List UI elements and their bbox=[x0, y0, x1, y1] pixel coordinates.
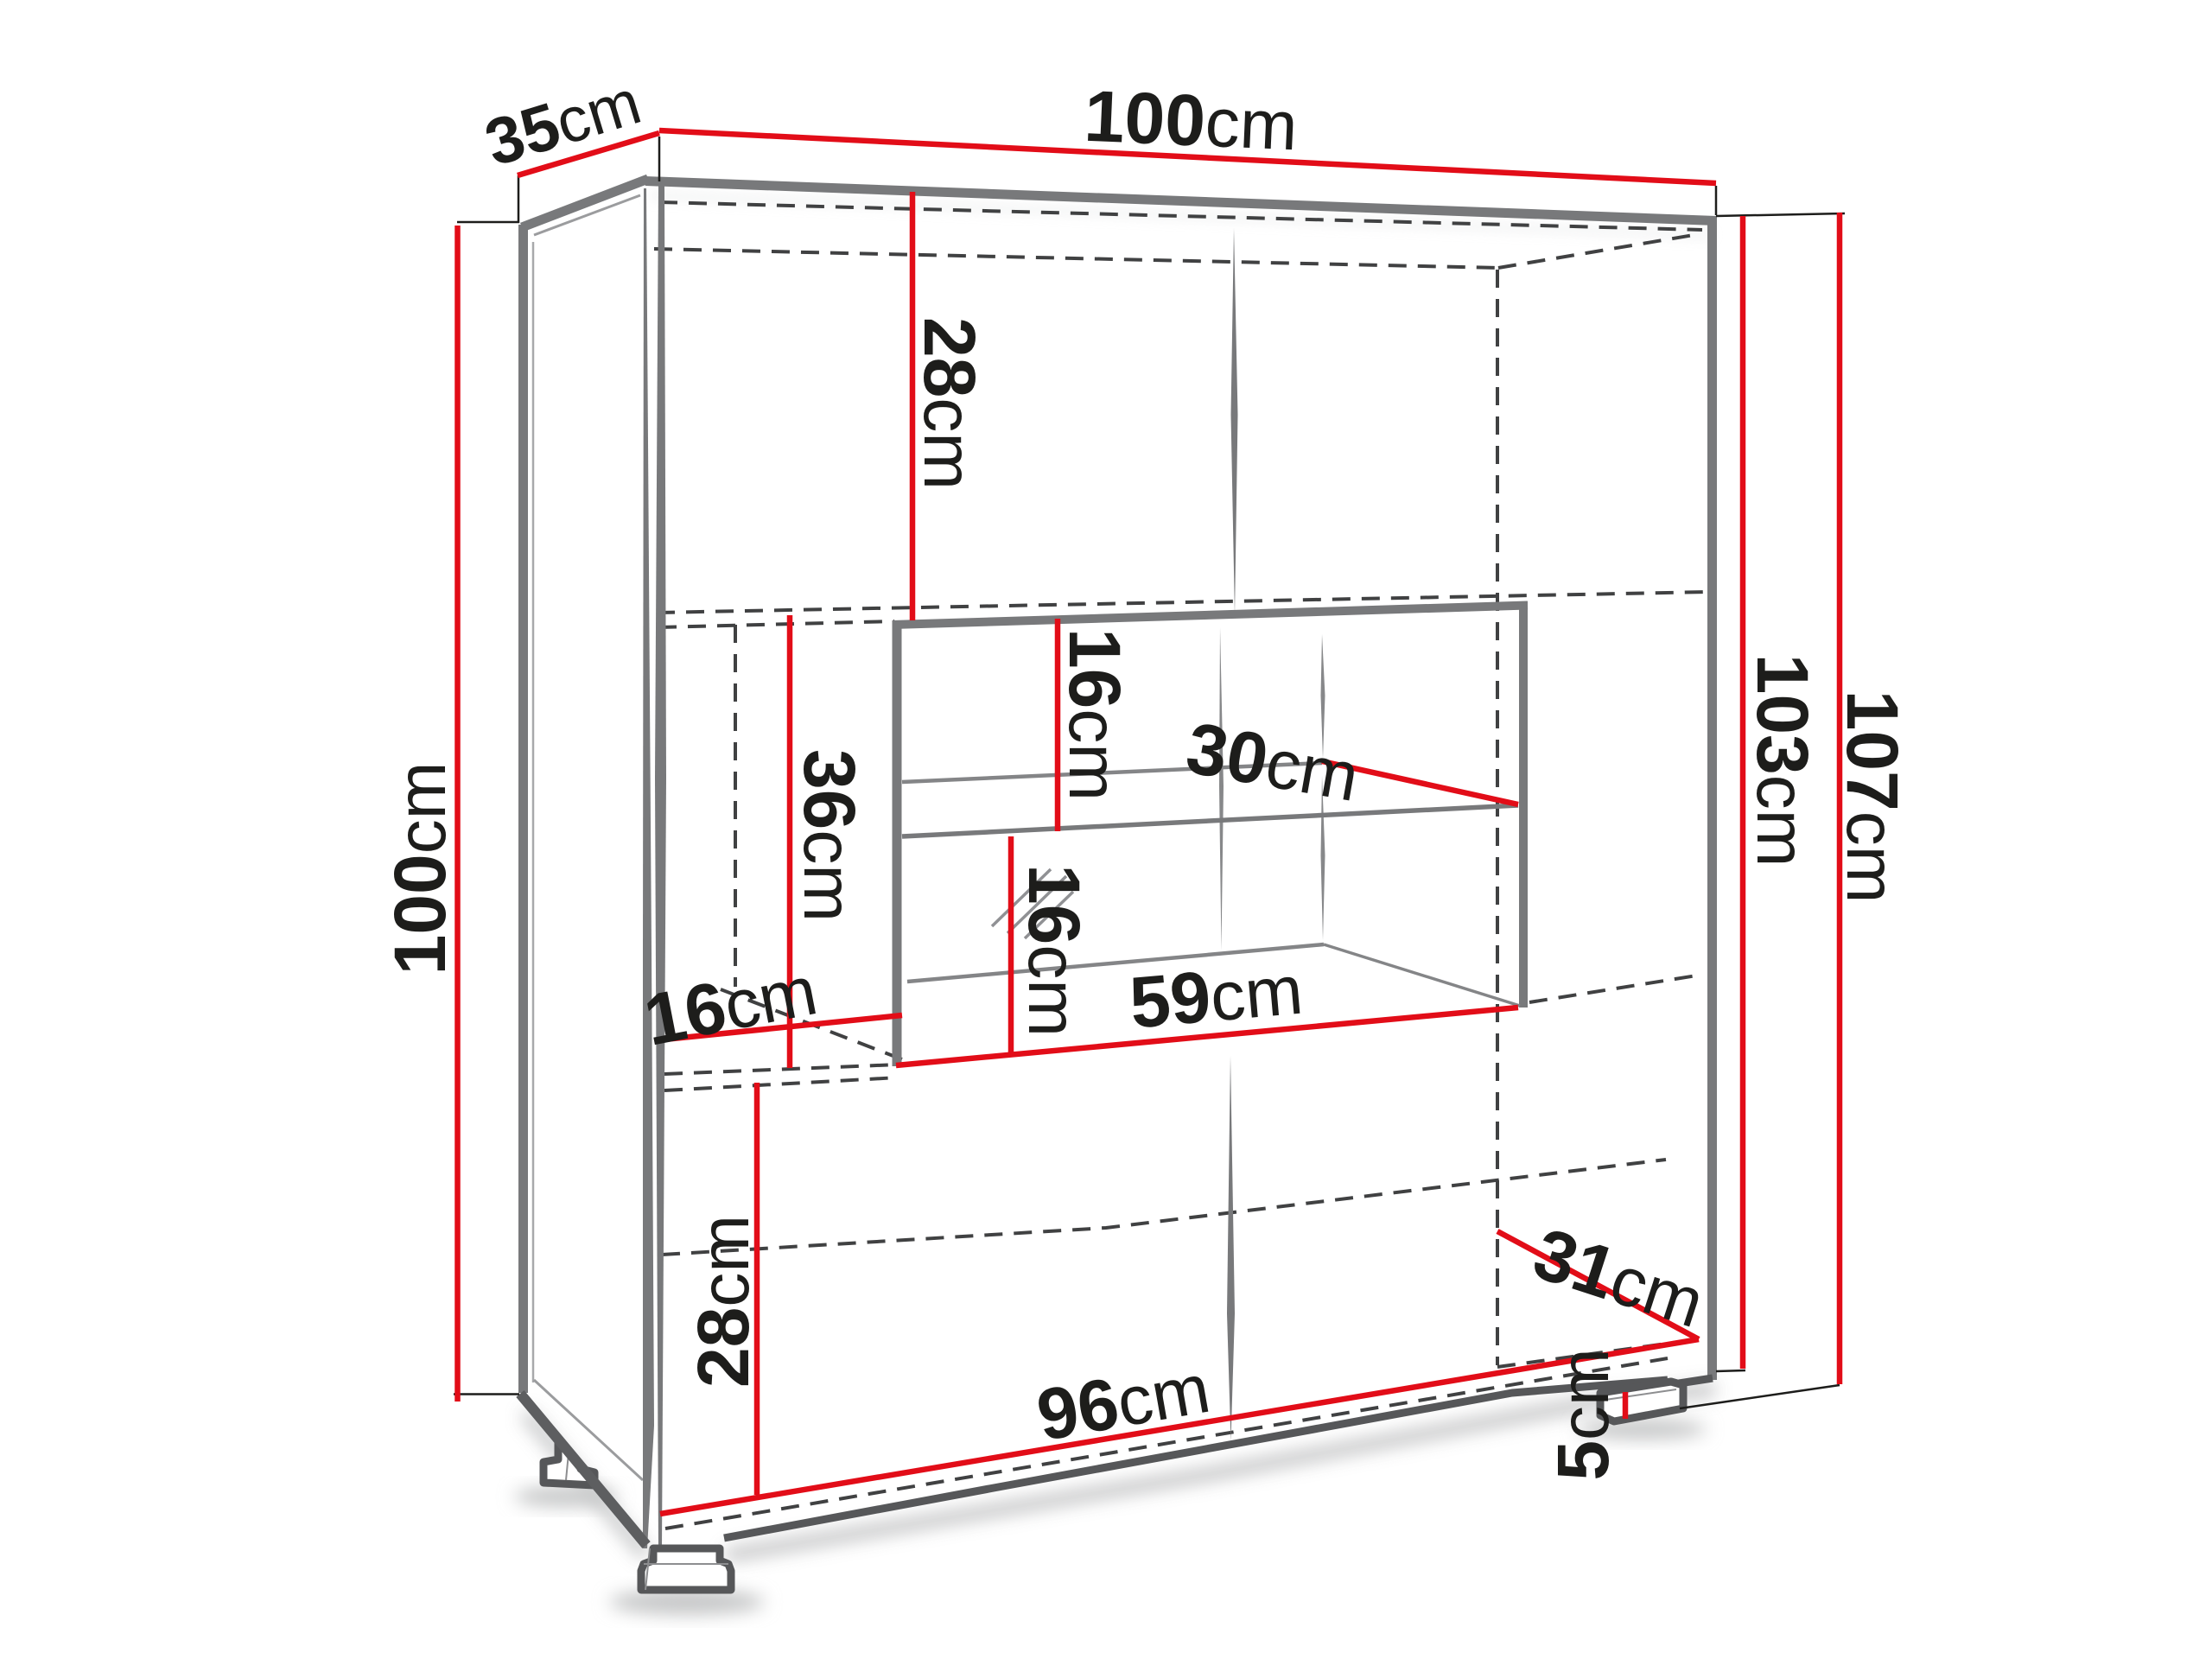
svg-text:36cm: 36cm bbox=[789, 749, 870, 922]
svg-text:100cm: 100cm bbox=[379, 762, 461, 976]
svg-text:107cm: 107cm bbox=[1832, 690, 1913, 904]
svg-text:16cm: 16cm bbox=[638, 948, 823, 1060]
svg-text:28cm: 28cm bbox=[909, 317, 990, 490]
svg-text:30cm: 30cm bbox=[1180, 707, 1364, 817]
svg-text:103cm: 103cm bbox=[1742, 654, 1823, 868]
svg-text:31cm: 31cm bbox=[1524, 1212, 1713, 1343]
svg-text:28cm: 28cm bbox=[683, 1215, 764, 1388]
svg-text:16cm: 16cm bbox=[1054, 628, 1135, 801]
svg-text:100cm: 100cm bbox=[1083, 75, 1300, 166]
svg-text:16cm: 16cm bbox=[1014, 864, 1095, 1037]
svg-text:59cm: 59cm bbox=[1127, 948, 1306, 1044]
svg-text:5cm: 5cm bbox=[1542, 1348, 1624, 1480]
